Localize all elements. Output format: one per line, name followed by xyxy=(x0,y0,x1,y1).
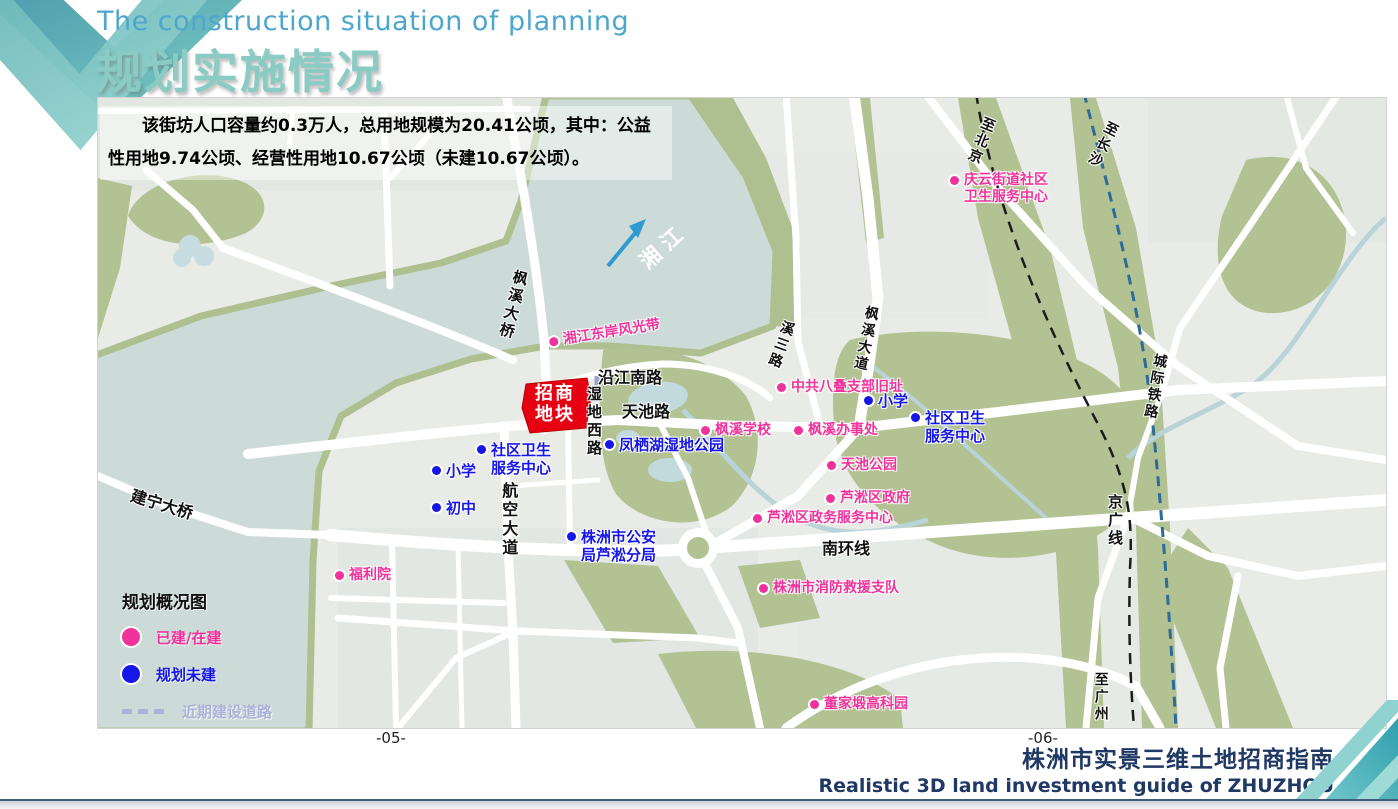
map-label-welfare-house: 福利院 xyxy=(335,567,391,584)
map-label-text: 董家塅高科园 xyxy=(824,696,908,713)
map-label-primary-school-w: 小学 xyxy=(432,462,476,480)
map-label-text: 京广线 xyxy=(1106,494,1124,548)
planned-dot-icon xyxy=(864,396,873,405)
map-label-fengqi-lake-wetland-park: 凤栖湖湿地公园 xyxy=(605,436,724,454)
page-number-left: -05- xyxy=(376,729,406,747)
map-graphic xyxy=(98,98,1386,728)
map-legend: 规划概况图 已建/在建 规划未建 近期建设道路 xyxy=(122,588,272,729)
map-label-primary-school-ne: 小学 xyxy=(864,392,908,410)
map-label-text: 株洲市消防救援支队 xyxy=(773,580,899,597)
map-label-qingyun-health-center: 庆云街道社区 卫生服务中心 xyxy=(950,172,1048,206)
map-label-text: 航空大道 xyxy=(499,482,518,558)
map-label-to-guangzhou: 至广州 xyxy=(1092,672,1109,723)
map-label-text: 湿地西路 xyxy=(585,386,603,458)
map-label-tianchi-road: 天池路 xyxy=(622,402,670,421)
map-label-investment-parcel: 招商 地块 xyxy=(535,384,575,425)
map-label-text: 福利院 xyxy=(349,567,391,584)
map-label-community-health-e: 社区卫生 服务中心 xyxy=(911,409,985,445)
planned-dot-icon xyxy=(432,466,441,475)
built-dot-icon xyxy=(950,176,959,185)
map-label-tianchi-park: 天池公园 xyxy=(827,457,897,474)
map-label-text: 南环线 xyxy=(822,539,870,558)
map-label-lusong-service-center: 芦淞区政务服务中心 xyxy=(753,510,893,527)
built-dot-icon xyxy=(122,628,140,646)
map-label-text: 天池路 xyxy=(622,402,670,421)
map-label-community-health-w: 社区卫生 服务中心 xyxy=(477,441,551,477)
map-label-text: 庆云街道社区 卫生服务中心 xyxy=(964,172,1048,206)
built-dot-icon xyxy=(549,337,559,347)
info-textbox: 该街坊人口容量约0.3万人，总用地规模为20.41公顷，其中：公益性用地9.74… xyxy=(100,106,672,180)
map-label-text: 沿江南路 xyxy=(598,368,662,387)
planned-dot-icon xyxy=(605,440,614,449)
dashed-road-icon xyxy=(122,709,166,714)
page-title-cn: 规划实施情况 xyxy=(96,36,384,102)
map-label-hangkong-avenue: 航空大道 xyxy=(499,482,518,558)
map-label-middle-school: 初中 xyxy=(432,499,476,517)
planned-dot-icon xyxy=(477,445,486,454)
corner-stripes-icon xyxy=(1278,700,1398,799)
legend-label-planned: 规划未建 xyxy=(156,664,216,685)
legend-item-built: 已建/在建 xyxy=(122,627,272,647)
planning-map[interactable]: 该街坊人口容量约0.3万人，总用地规模为20.41公顷，其中：公益性用地9.74… xyxy=(97,97,1387,729)
legend-label-planned-road: 近期建设道路 xyxy=(182,701,272,722)
map-label-nanhuan-line: 南环线 xyxy=(822,539,870,558)
planned-dot-icon xyxy=(911,413,920,422)
map-label-fire-rescue-brigade: 株洲市消防救援支队 xyxy=(759,580,899,597)
planned-dot-icon xyxy=(567,532,576,541)
map-label-text: 芦淞区政府 xyxy=(840,490,910,507)
footer-title-en: Realistic 3D land investment guide of ZH… xyxy=(819,775,1334,798)
built-dot-icon xyxy=(335,571,344,580)
legend-label-built: 已建/在建 xyxy=(156,627,221,648)
map-label-text: 凤栖湖湿地公园 xyxy=(619,436,724,454)
map-label-dongjiaduan-tech-park: 董家塅高科园 xyxy=(810,696,908,713)
map-label-fengxi-office: 枫溪办事处 xyxy=(794,422,878,439)
planned-dot-icon xyxy=(122,665,140,683)
legend-title: 规划概况图 xyxy=(122,588,272,613)
page-title-en: The construction situation of planning xyxy=(97,6,629,37)
map-label-text: 小学 xyxy=(446,462,476,480)
built-dot-icon xyxy=(777,383,786,392)
map-label-yanjiang-south-road: 沿江南路 xyxy=(598,368,662,387)
map-label-text: 社区卫生 服务中心 xyxy=(491,441,551,477)
slide: The construction situation of planning 规… xyxy=(0,0,1398,809)
built-dot-icon xyxy=(794,426,803,435)
map-label-text: 枫溪办事处 xyxy=(808,422,878,439)
footer-title-block: 株洲市实景三维土地招商指南 Realistic 3D land investme… xyxy=(819,747,1334,797)
footer-title-cn: 株洲市实景三维土地招商指南 xyxy=(819,747,1334,775)
built-dot-icon xyxy=(701,426,710,435)
map-label-text: 至广州 xyxy=(1092,672,1109,723)
legend-item-planned-road: 近期建设道路 xyxy=(122,701,272,721)
legend-item-planned: 规划未建 xyxy=(122,664,272,684)
built-dot-icon xyxy=(826,494,835,503)
map-label-shidi-west-road: 湿地西路 xyxy=(585,386,603,458)
map-label-police-lusong-branch: 株洲市公安 局芦淞分局 xyxy=(567,528,656,564)
map-label-text: 株洲市公安 局芦淞分局 xyxy=(581,528,656,564)
map-label-text: 社区卫生 服务中心 xyxy=(925,409,985,445)
map-label-text: 初中 xyxy=(446,499,476,517)
footer-bottom-strip xyxy=(0,801,1398,809)
built-dot-icon xyxy=(759,584,768,593)
map-label-jingguang-line: 京广线 xyxy=(1106,494,1124,548)
map-label-text: 小学 xyxy=(878,392,908,410)
map-label-text: 招商 地块 xyxy=(535,384,575,425)
map-label-text: 天池公园 xyxy=(841,457,897,474)
built-dot-icon xyxy=(827,461,836,470)
built-dot-icon xyxy=(753,514,762,523)
page-number-right: -06- xyxy=(1028,729,1058,747)
map-label-lusong-district-gov: 芦淞区政府 xyxy=(826,490,910,507)
built-dot-icon xyxy=(810,700,819,709)
planned-dot-icon xyxy=(432,503,441,512)
map-label-text: 芦淞区政务服务中心 xyxy=(767,510,893,527)
